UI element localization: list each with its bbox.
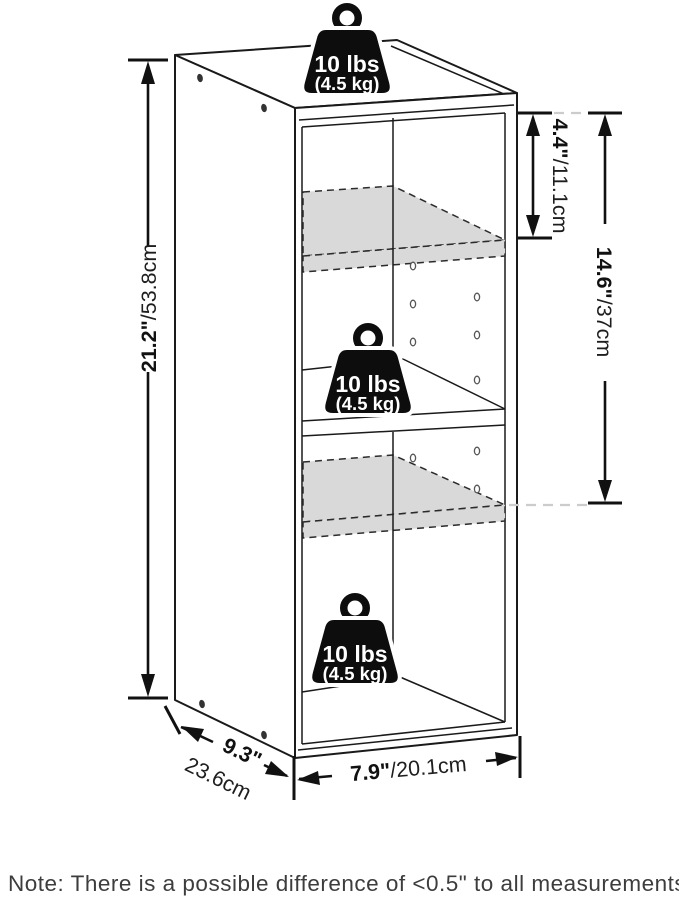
width-dimension-label: 7.9"/20.1cm bbox=[349, 752, 467, 786]
arrowhead-up bbox=[526, 114, 540, 136]
top-shelf-gap-label: 4.4"/11.1cm bbox=[548, 119, 572, 234]
weight-kg-label: (4.5 kg) bbox=[323, 663, 388, 684]
arrowhead-upleft bbox=[181, 726, 204, 742]
arrowhead-down bbox=[526, 215, 540, 237]
diagram-canvas: 10 lbs (4.5 kg) 10 lbs (4.5 kg) 10 lbs (… bbox=[0, 0, 679, 898]
shelf-dimension-diagram: 10 lbs (4.5 kg) 10 lbs (4.5 kg) 10 lbs (… bbox=[0, 0, 679, 898]
arrowhead-up bbox=[141, 61, 155, 84]
measurement-note: Note: There is a possible difference of … bbox=[8, 871, 679, 896]
dimension-top-shelf-gap: 4.4"/11.1cm bbox=[518, 113, 572, 238]
weight-kg-label: (4.5 kg) bbox=[315, 73, 380, 94]
arrowhead-downright bbox=[265, 761, 289, 777]
weight-kg-label: (4.5 kg) bbox=[336, 393, 401, 414]
height-dimension-label: 21.2"/53.8cm bbox=[137, 244, 161, 373]
arrowhead-down bbox=[598, 480, 612, 502]
weight-icon-top: 10 lbs (4.5 kg) bbox=[302, 1, 392, 95]
shelf-span-label: 14.6"/37cm bbox=[592, 247, 616, 358]
arrowhead-down bbox=[141, 674, 155, 697]
dimension-height: 21.2"/53.8cm bbox=[128, 60, 168, 698]
weight-ring-hole bbox=[348, 601, 363, 616]
cabinet-left-panel bbox=[175, 55, 295, 758]
arrowhead-up bbox=[598, 114, 612, 136]
weight-ring-hole bbox=[361, 331, 376, 346]
weight-ring-hole bbox=[340, 11, 355, 26]
